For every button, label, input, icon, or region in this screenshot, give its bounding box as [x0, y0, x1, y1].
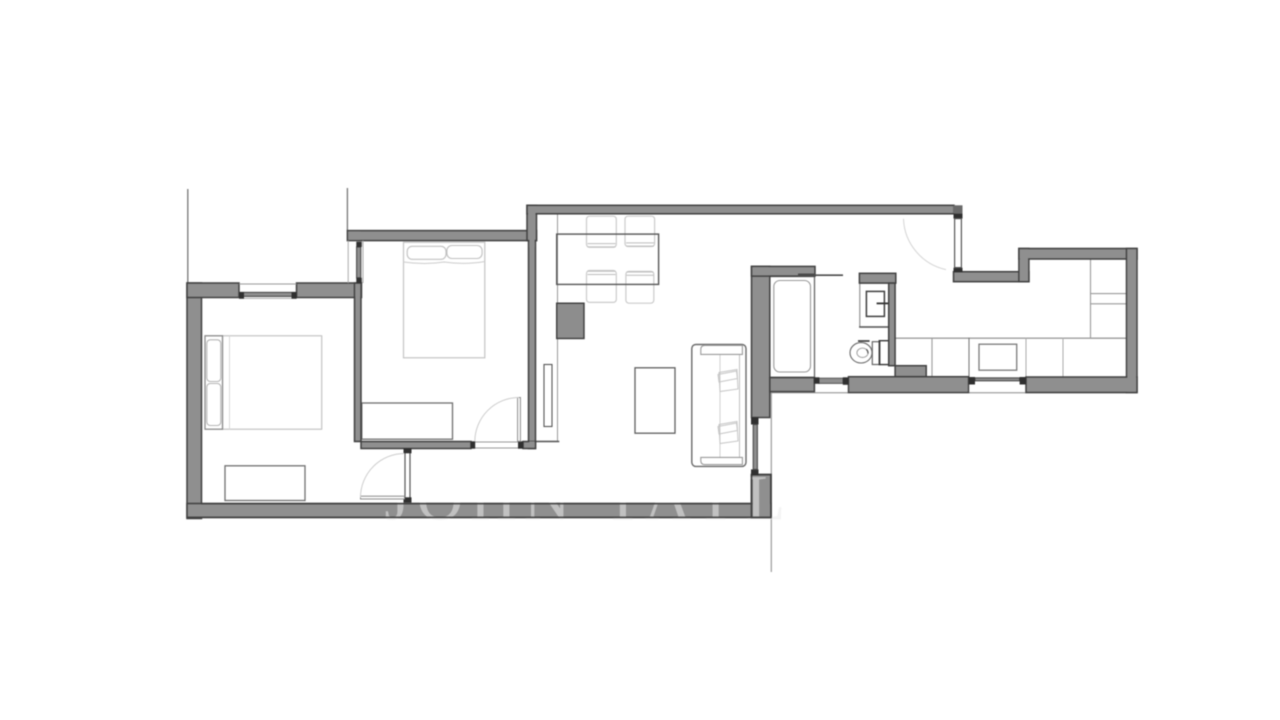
svg-text:JOHN TAYLOR: JOHN TAYLOR — [385, 463, 896, 534]
